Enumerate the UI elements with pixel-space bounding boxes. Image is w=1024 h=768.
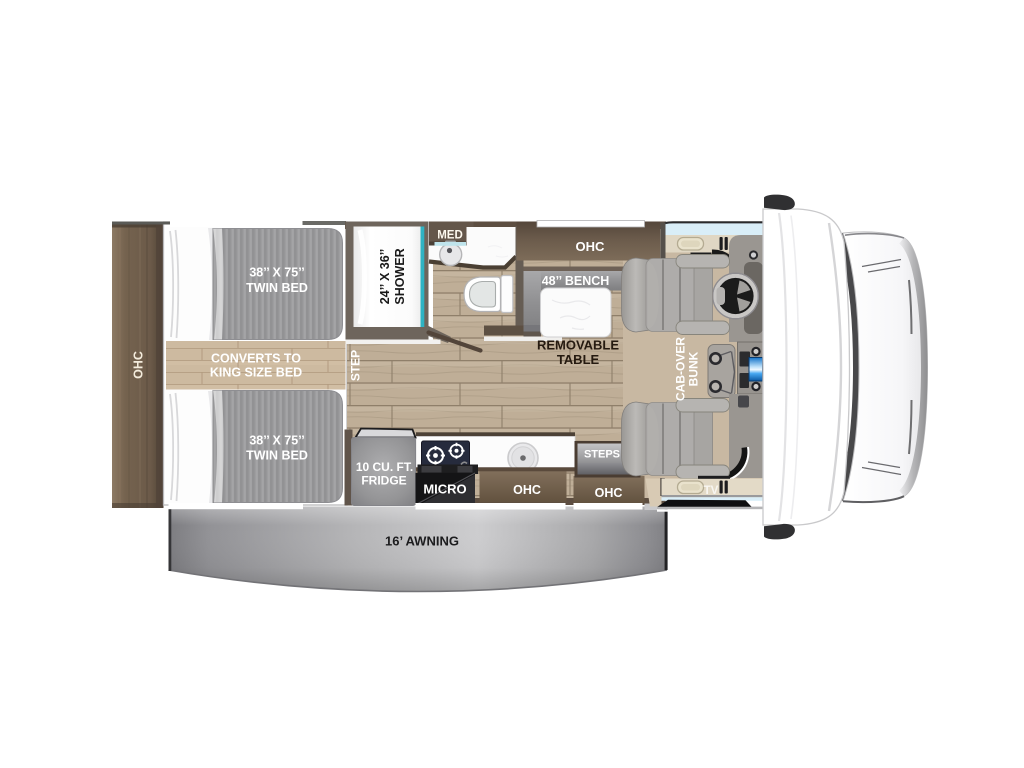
svg-text:16’ AWNING: 16’ AWNING	[385, 534, 459, 549]
svg-text:OHC: OHC	[131, 351, 145, 379]
svg-text:STEPS: STEPS	[584, 449, 620, 461]
svg-text:REMOVABLE: REMOVABLE	[537, 338, 619, 353]
svg-text:OHC: OHC	[595, 486, 623, 500]
svg-text:TABLE: TABLE	[557, 352, 600, 367]
svg-text:FRIDGE: FRIDGE	[361, 474, 406, 488]
svg-text:TWIN BED: TWIN BED	[246, 281, 308, 295]
svg-text:CONVERTS TO: CONVERTS TO	[211, 352, 301, 366]
svg-text:OHC: OHC	[513, 483, 541, 497]
svg-text:38’’ X 75’’: 38’’ X 75’’	[249, 266, 304, 280]
svg-text:KING SIZE BED: KING SIZE BED	[210, 366, 302, 380]
svg-text:48’’ BENCH: 48’’ BENCH	[542, 274, 610, 288]
svg-text:MED: MED	[437, 230, 463, 242]
svg-text:CAB-OVER: CAB-OVER	[674, 337, 688, 401]
svg-text:24’’ X 36’’: 24’’ X 36’’	[378, 249, 392, 304]
svg-text:38’’ X 75’’: 38’’ X 75’’	[249, 434, 304, 448]
svg-text:SHOWER: SHOWER	[393, 248, 407, 304]
svg-text:TWIN BED: TWIN BED	[246, 449, 308, 463]
svg-text:STEP: STEP	[348, 350, 362, 381]
svg-text:10 CU. FT.: 10 CU. FT.	[356, 460, 413, 474]
svg-text:MICRO: MICRO	[423, 482, 466, 497]
svg-text:OHC: OHC	[576, 239, 606, 254]
svg-text:BUNK: BUNK	[687, 351, 701, 386]
